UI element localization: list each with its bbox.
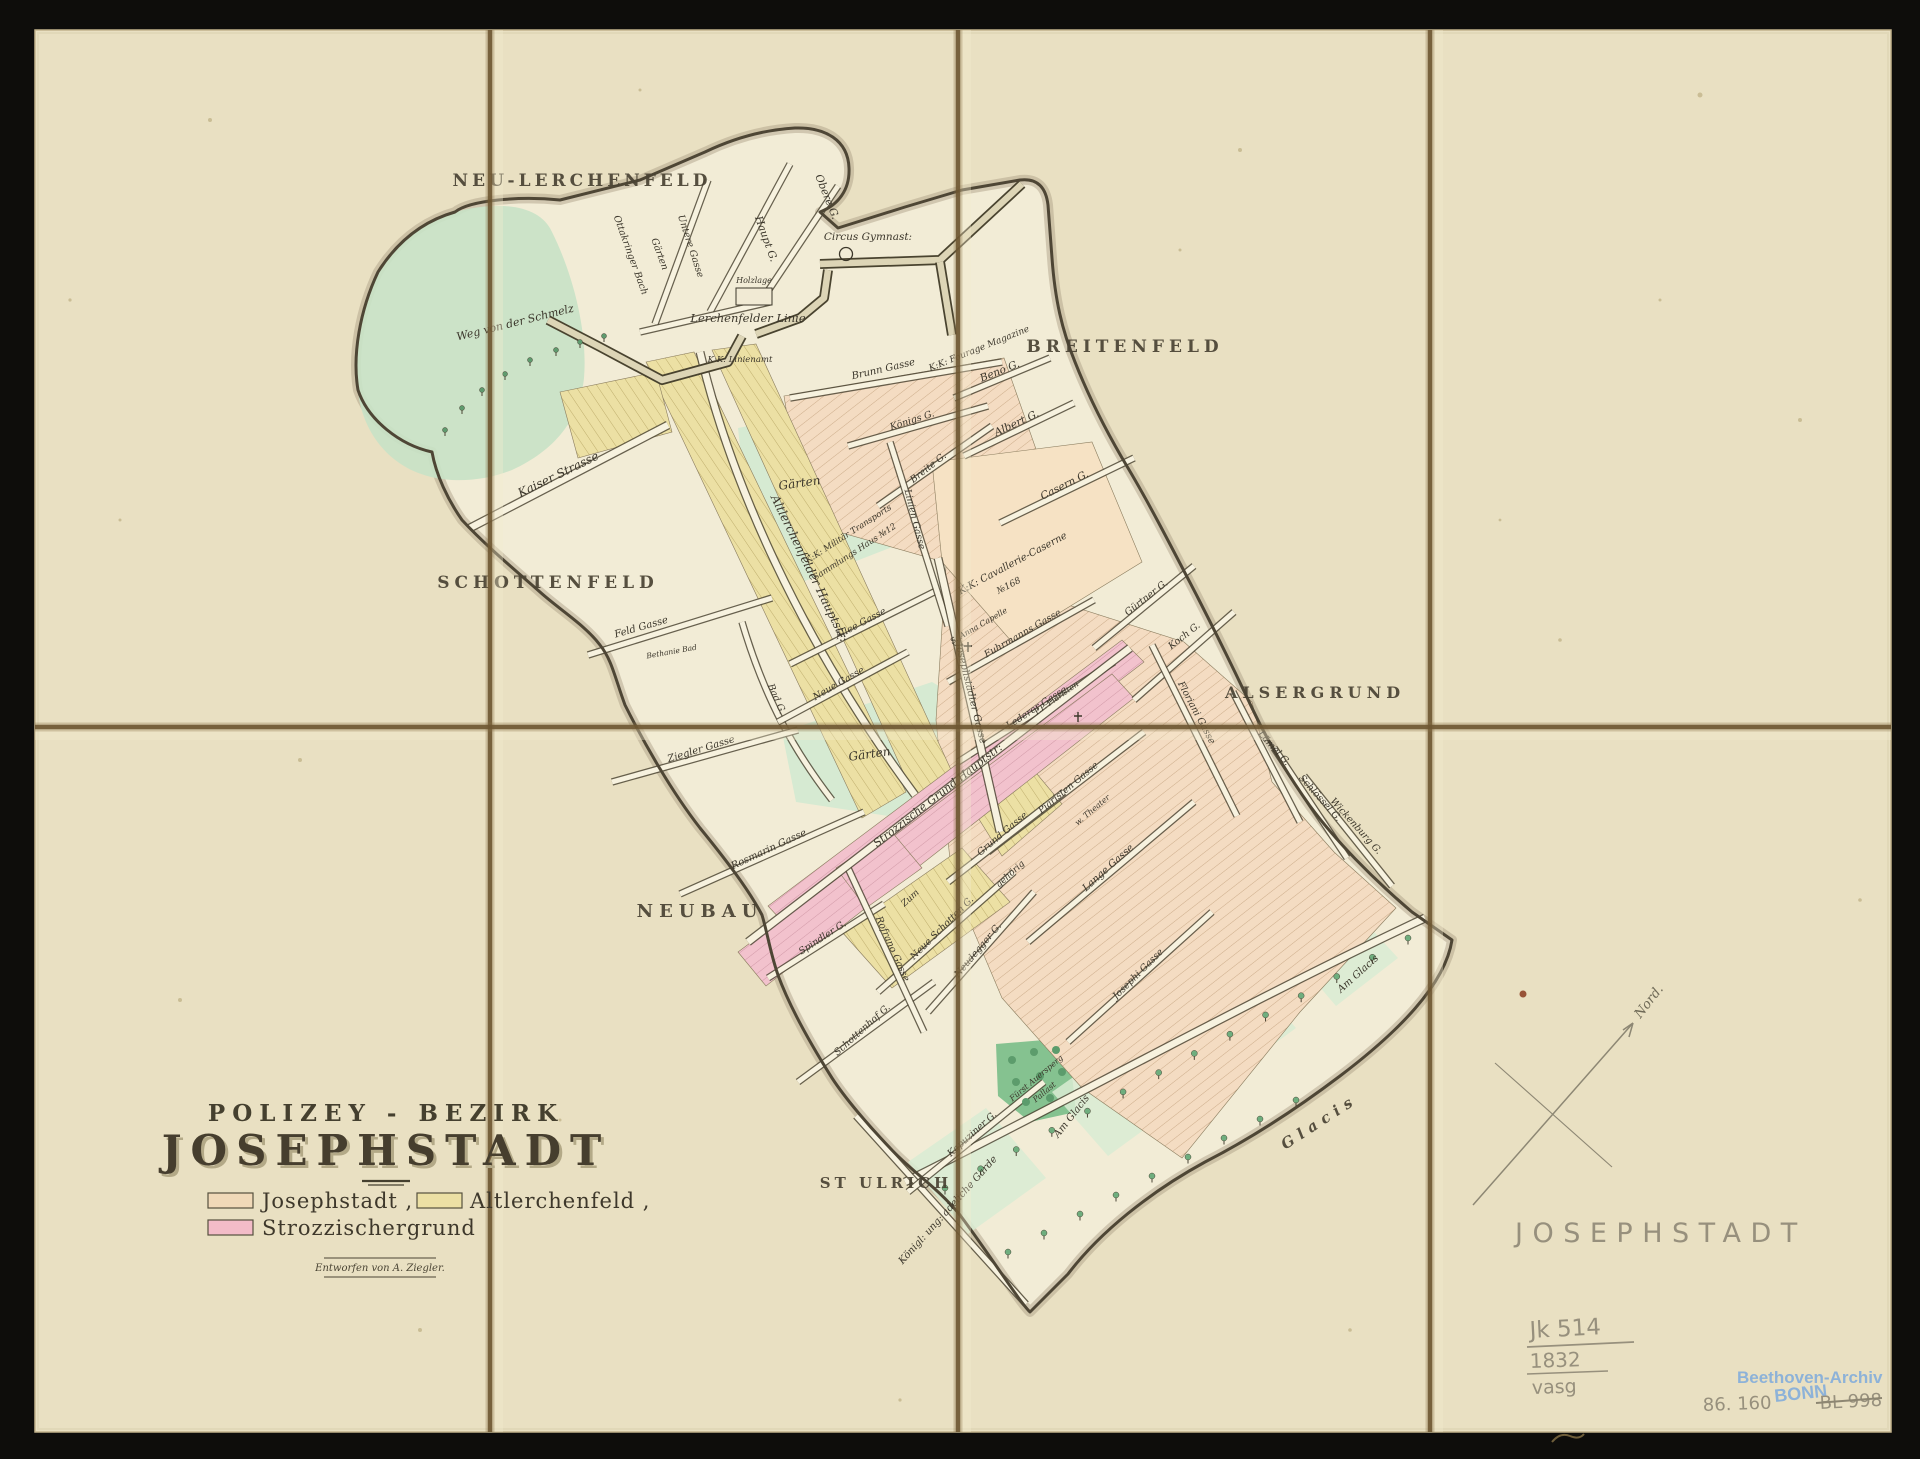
legend-label-josephstadt: Josephstadt , [260, 1189, 413, 1213]
pencil-title: JOSEPHSTADT [1513, 1218, 1807, 1249]
tree-icon [1257, 1116, 1263, 1122]
paper-speckle [1348, 1328, 1352, 1332]
holzlage-building [736, 288, 772, 305]
legend-label-altlerchenfeld: Altlerchenfeld , [469, 1189, 650, 1213]
tree-icon [1227, 1031, 1233, 1037]
tree-icon [1113, 1192, 1119, 1198]
tree-icon [480, 388, 485, 393]
scanned-map-photo: NEU-LERCHENFELDBREITENFELDSCHOTTENFELDAL… [0, 0, 1920, 1459]
red-stain [1520, 991, 1527, 998]
legend-swatch-altlerchenfeld [417, 1193, 462, 1208]
map-scan-svg: NEU-LERCHENFELDBREITENFELDSCHOTTENFELDAL… [0, 0, 1920, 1459]
tree-icon [1077, 1211, 1083, 1217]
legend-swatch-strozzischergrund [208, 1220, 253, 1235]
map-kicker: POLIZEY - BEZIRK [208, 1100, 564, 1127]
garden-tree-icon [1022, 1098, 1030, 1106]
tree-icon [503, 372, 508, 377]
paper-speckle [119, 519, 122, 522]
paper-speckle [898, 1398, 901, 1401]
alsergrund-label: ALSERGRUND [1224, 683, 1405, 702]
k-k-linienamt-label: K:K: Linienamt [707, 355, 773, 365]
tree-icon [1298, 993, 1304, 999]
accession-number: 86. 160 [1702, 1393, 1771, 1416]
tree-icon [1120, 1089, 1126, 1095]
garden-tree-icon [1008, 1056, 1016, 1064]
tree-icon [1156, 1070, 1162, 1076]
tree-icon [1185, 1154, 1191, 1160]
paper-speckle [298, 758, 302, 762]
tree-icon [1005, 1249, 1011, 1255]
tree-icon [1263, 1012, 1269, 1018]
garden-tree-icon [1052, 1046, 1060, 1054]
legend-swatch-josephstadt [208, 1193, 253, 1208]
tree-icon [443, 428, 448, 433]
tree-icon [578, 340, 583, 345]
paper-speckle [1659, 299, 1662, 302]
paper-speckle [1698, 93, 1703, 98]
breitenfeld-label: BREITENFELD [1026, 337, 1223, 357]
paper-speckle [1179, 249, 1182, 252]
paper-speckle [1798, 418, 1802, 422]
paper-speckle [1558, 638, 1562, 642]
tree-icon [1293, 1097, 1299, 1103]
paper-speckle [178, 998, 182, 1002]
paper-speckle [1238, 148, 1242, 152]
credit-line: Entworfen von A. Ziegler. [314, 1263, 445, 1274]
paper-speckle [1858, 898, 1862, 902]
circus-gymnast-label: Circus Gymnast: [824, 231, 912, 243]
tree-icon [460, 406, 465, 411]
paper-speckle [208, 118, 212, 122]
tree-icon [1334, 973, 1340, 979]
legend-label-strozzischergrund: Strozzischergrund [262, 1216, 476, 1240]
schottenfeld-label: SCHOTTENFELD [437, 573, 659, 593]
map-title: JOSEPHSTADT [158, 1126, 611, 1175]
paper-speckle [68, 298, 71, 301]
neubau-label: NEUBAU [637, 901, 764, 922]
tree-icon [1084, 1108, 1090, 1114]
garden-tree-icon [1058, 1068, 1066, 1076]
year-note: 1832 [1529, 1347, 1581, 1373]
tree-icon [1149, 1173, 1155, 1179]
paper-speckle [639, 89, 642, 92]
garden-tree-icon [1030, 1048, 1038, 1056]
catalog-number: Jk 514 [1527, 1314, 1602, 1344]
tree-icon [602, 334, 607, 339]
tree-icon [528, 358, 533, 363]
tree-icon [1405, 935, 1411, 941]
st-ulrich-label: ST ULRICH [820, 1174, 952, 1192]
tree-icon [1013, 1147, 1019, 1153]
tree-icon [554, 348, 559, 353]
tree-icon [1191, 1050, 1197, 1056]
lerchenfelder-linie-label: Lerchenfelder Linie [689, 311, 805, 325]
tree-icon [1041, 1230, 1047, 1236]
paper-speckle [418, 1328, 422, 1332]
paper-speckle [1499, 519, 1502, 522]
holzlage-label: Holzlage [735, 276, 772, 285]
initials-note: vasg [1531, 1375, 1577, 1399]
garden-tree-icon [1012, 1078, 1020, 1086]
tree-icon [1221, 1135, 1227, 1141]
